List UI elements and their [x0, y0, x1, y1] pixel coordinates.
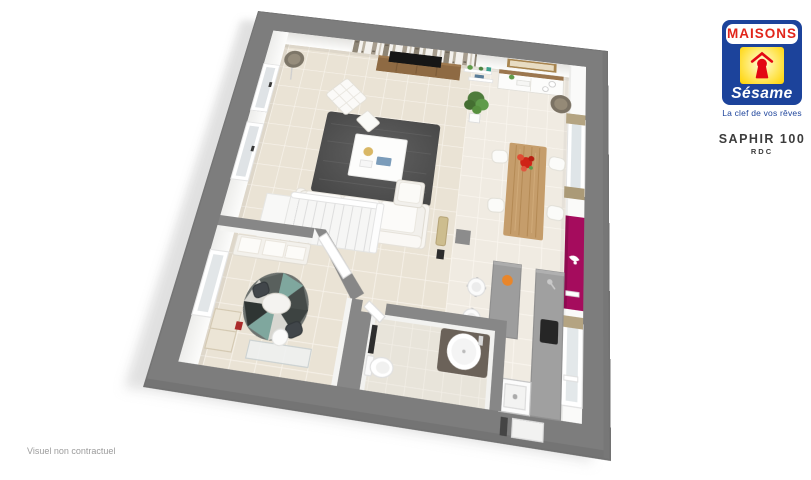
sink	[499, 378, 531, 416]
page: MAISONS Sésame La clef de vos rêves SAPH…	[0, 0, 811, 480]
coffee-table	[348, 134, 407, 182]
plan-level: RDC	[712, 147, 811, 156]
magenta-accent-wall	[563, 215, 584, 311]
logo-tagline: La clef de vos rêves	[712, 108, 811, 118]
cooktop	[540, 319, 559, 345]
column	[455, 229, 471, 245]
logo-sesame-text: Sésame	[722, 85, 802, 103]
logo-maisons-band: MAISONS	[726, 24, 798, 44]
plan-title: SAPHIR 100	[712, 132, 811, 146]
dining-table	[503, 143, 547, 241]
washbasin	[437, 328, 491, 379]
kitchen-counter	[529, 269, 564, 420]
maisons-sesame-logo: MAISONS Sésame	[722, 20, 802, 105]
logo-maisons-text: MAISONS	[727, 27, 797, 41]
brand-block: MAISONS Sésame La clef de vos rêves SAPH…	[712, 20, 811, 156]
house-keyhole-icon	[740, 47, 784, 84]
floor-plan-3d	[143, 11, 611, 461]
disclaimer-text: Visuel non contractuel	[27, 446, 115, 456]
